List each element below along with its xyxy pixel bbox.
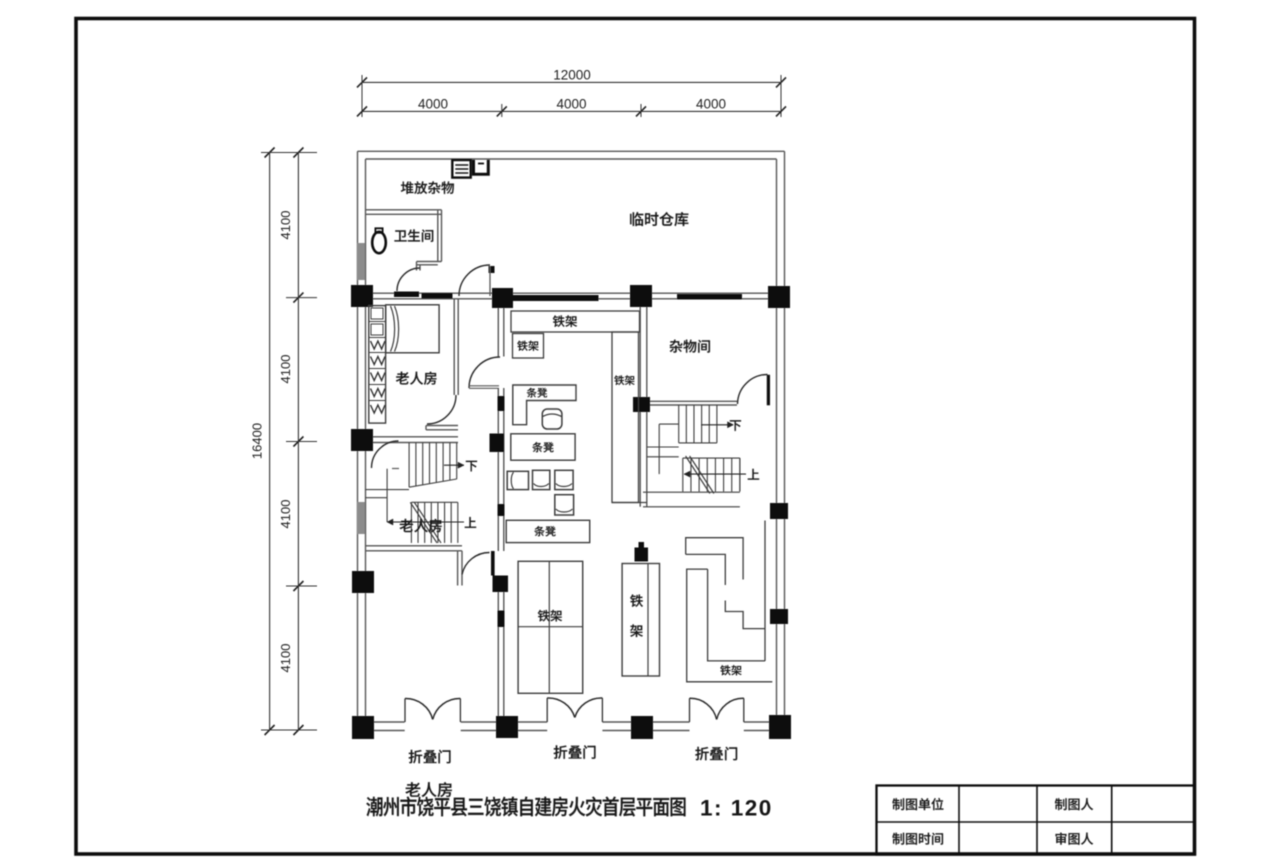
svg-text:4100: 4100 (278, 500, 293, 529)
svg-text:4000: 4000 (556, 97, 586, 112)
svg-text:16400: 16400 (250, 423, 265, 459)
svg-text:1: 120: 1: 120 (700, 796, 773, 821)
svg-text:4100: 4100 (278, 211, 293, 240)
svg-text:4000: 4000 (418, 97, 448, 112)
svg-text:12000: 12000 (553, 68, 591, 83)
svg-text:4100: 4100 (278, 644, 293, 673)
svg-text:4100: 4100 (278, 355, 293, 384)
svg-text:4000: 4000 (696, 97, 726, 112)
